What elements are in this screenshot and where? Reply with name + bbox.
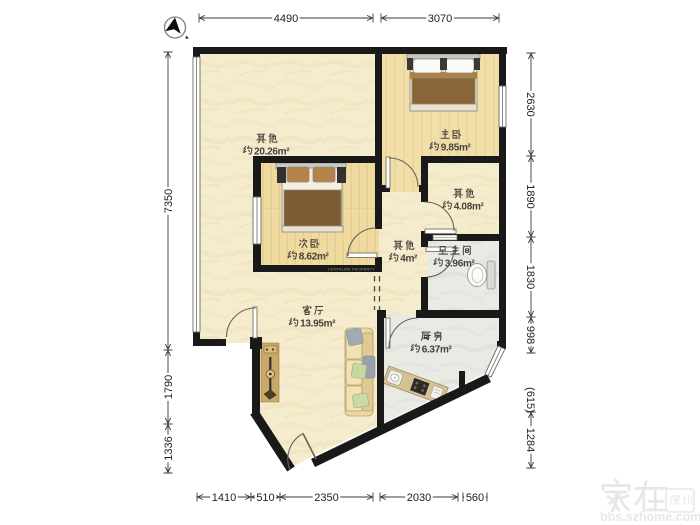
svg-text:bbs.szhome.com: bbs.szhome.com bbox=[600, 510, 700, 524]
svg-text:3.96m²: 3.96m² bbox=[445, 259, 476, 270]
svg-text:1284: 1284 bbox=[524, 428, 536, 452]
svg-text:13.95m²: 13.95m² bbox=[300, 319, 336, 330]
svg-text:510: 510 bbox=[256, 492, 274, 504]
svg-text:2030: 2030 bbox=[407, 492, 431, 504]
svg-text:(615): (615) bbox=[524, 387, 536, 413]
svg-text:1830: 1830 bbox=[524, 265, 536, 289]
svg-text:8.62m²: 8.62m² bbox=[299, 252, 330, 263]
svg-text:9.85m²: 9.85m² bbox=[441, 143, 472, 154]
svg-text:20.26m²: 20.26m² bbox=[254, 147, 290, 158]
svg-text:CENTALINE PROPERTY: CENTALINE PROPERTY bbox=[328, 267, 375, 272]
svg-text:3070: 3070 bbox=[428, 13, 452, 25]
svg-text:998: 998 bbox=[524, 326, 536, 344]
svg-text:560: 560 bbox=[466, 492, 484, 504]
svg-text:1790: 1790 bbox=[163, 375, 175, 399]
svg-text:4.08m²: 4.08m² bbox=[454, 202, 485, 213]
svg-text:1410: 1410 bbox=[212, 492, 236, 504]
svg-text:4m²: 4m² bbox=[400, 254, 418, 265]
svg-text:2350: 2350 bbox=[314, 492, 338, 504]
svg-text:1890: 1890 bbox=[524, 184, 536, 208]
svg-text:7350: 7350 bbox=[163, 189, 175, 213]
svg-text:4490: 4490 bbox=[274, 13, 298, 25]
svg-text:2630: 2630 bbox=[524, 92, 536, 116]
svg-text:1336: 1336 bbox=[163, 436, 175, 460]
svg-text:6.37m²: 6.37m² bbox=[422, 345, 453, 356]
